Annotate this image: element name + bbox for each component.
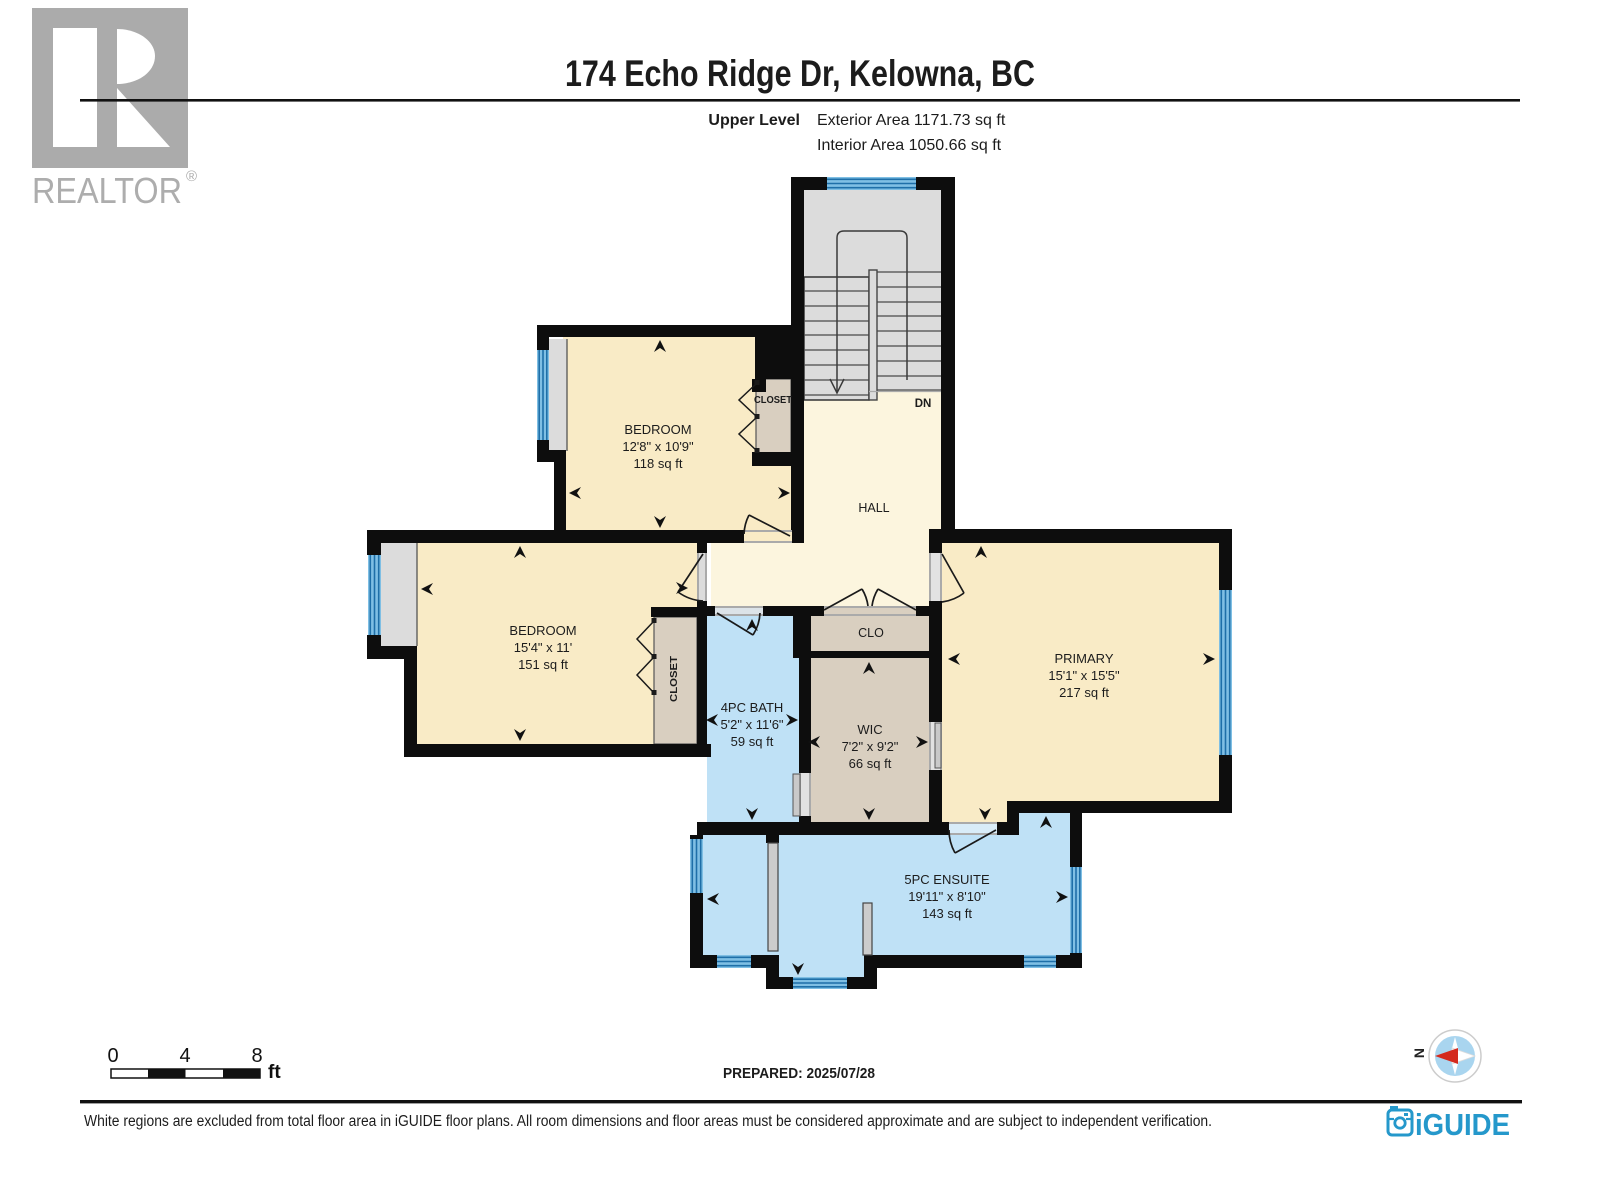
svg-text:CLOSET: CLOSET	[754, 395, 792, 406]
svg-text:Exterior Area 1171.73 sq ft: Exterior Area 1171.73 sq ft	[817, 112, 1006, 129]
svg-text:15'4" x 11': 15'4" x 11'	[514, 640, 573, 655]
svg-text:iGUIDE: iGUIDE	[1415, 1107, 1510, 1142]
svg-text:174 Echo Ridge Dr, Kelowna, BC: 174 Echo Ridge Dr, Kelowna, BC	[565, 53, 1035, 94]
svg-text:5'2" x 11'6": 5'2" x 11'6"	[720, 717, 783, 732]
svg-text:217 sq ft: 217 sq ft	[1059, 685, 1109, 700]
svg-text:4: 4	[179, 1045, 190, 1067]
svg-text:BEDROOM: BEDROOM	[509, 623, 576, 638]
svg-text:66 sq ft: 66 sq ft	[849, 756, 892, 771]
svg-text:7'2" x 9'2": 7'2" x 9'2"	[842, 739, 899, 754]
svg-text:118 sq ft: 118 sq ft	[634, 456, 683, 471]
svg-text:0: 0	[107, 1045, 118, 1067]
svg-text:CLOSET: CLOSET	[669, 656, 680, 702]
svg-text:WIC: WIC	[857, 722, 882, 737]
svg-text:PREPARED: 2025/07/28: PREPARED: 2025/07/28	[723, 1065, 875, 1082]
svg-text:8: 8	[251, 1045, 262, 1067]
svg-text:REALTOR: REALTOR	[32, 170, 182, 211]
svg-text:CLO: CLO	[858, 626, 884, 640]
svg-text:N: N	[1411, 1048, 1427, 1058]
svg-text:15'1" x 15'5": 15'1" x 15'5"	[1048, 668, 1120, 683]
svg-text:®: ®	[186, 168, 197, 185]
svg-text:Upper Level: Upper Level	[708, 112, 800, 129]
svg-text:19'11" x 8'10": 19'11" x 8'10"	[908, 889, 986, 904]
svg-text:ft: ft	[268, 1062, 281, 1083]
svg-text:PRIMARY: PRIMARY	[1055, 651, 1114, 666]
svg-text:DN: DN	[915, 398, 932, 410]
svg-text:143 sq ft: 143 sq ft	[922, 906, 972, 921]
svg-text:59 sq ft: 59 sq ft	[731, 734, 774, 749]
svg-text:HALL: HALL	[858, 501, 889, 515]
svg-text:White regions are excluded fro: White regions are excluded from total fl…	[84, 1113, 1212, 1130]
svg-text:4PC BATH: 4PC BATH	[721, 700, 784, 715]
svg-text:12'8" x 10'9": 12'8" x 10'9"	[622, 439, 694, 454]
svg-text:BEDROOM: BEDROOM	[624, 422, 691, 437]
svg-text:5PC ENSUITE: 5PC ENSUITE	[904, 872, 990, 887]
svg-text:Interior Area 1050.66 sq ft: Interior Area 1050.66 sq ft	[817, 137, 1002, 154]
svg-text:151 sq ft: 151 sq ft	[518, 657, 568, 672]
